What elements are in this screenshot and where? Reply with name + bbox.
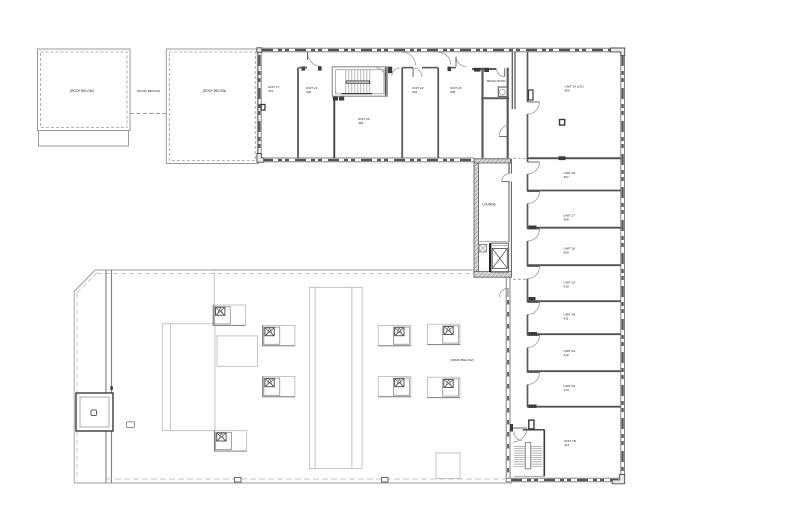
- svg-text:(ROOF BELOW): (ROOF BELOW): [203, 89, 227, 93]
- svg-text:408: 408: [564, 218, 569, 222]
- svg-text:404: 404: [412, 90, 417, 94]
- svg-text:TRASH ROOM: TRASH ROOM: [486, 79, 506, 83]
- svg-text:(ROOF BELOW): (ROOF BELOW): [137, 89, 160, 93]
- svg-text:(ROOF BELOW): (ROOF BELOW): [70, 89, 94, 93]
- svg-text:LOUNGE: LOUNGE: [482, 203, 495, 207]
- svg-text:407: 407: [564, 175, 569, 179]
- svg-text:405: 405: [450, 90, 455, 94]
- svg-text:412: 412: [564, 353, 569, 357]
- svg-text:409: 409: [564, 251, 569, 255]
- svg-text:406: 406: [565, 89, 570, 93]
- svg-text:401: 401: [268, 89, 273, 93]
- svg-text:411: 411: [564, 317, 569, 321]
- svg-text:403: 403: [358, 121, 363, 125]
- svg-text:413: 413: [564, 388, 569, 392]
- svg-text:402: 402: [306, 90, 311, 94]
- svg-text:410: 410: [564, 285, 569, 289]
- svg-text:414: 414: [564, 443, 569, 447]
- svg-text:(ROOF BELOW): (ROOF BELOW): [450, 358, 473, 362]
